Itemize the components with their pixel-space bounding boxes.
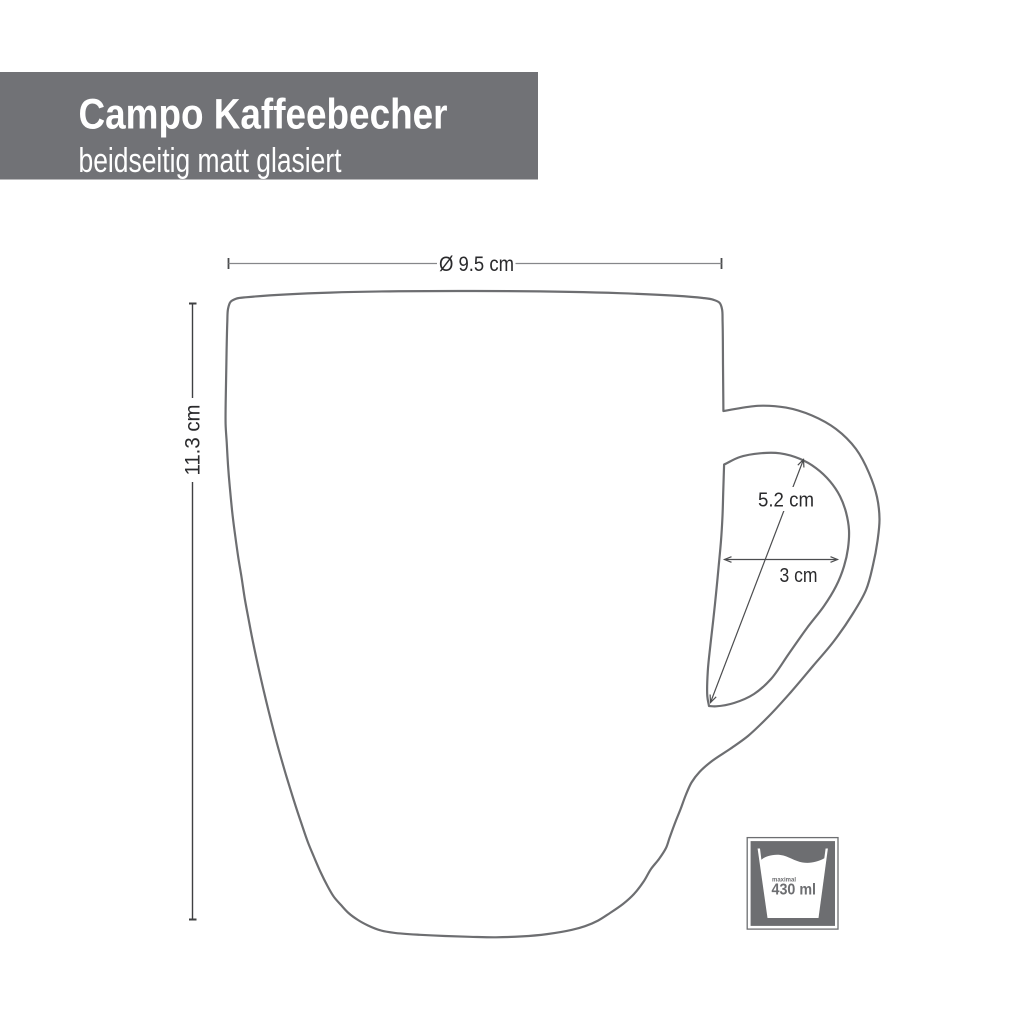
svg-text:Campo Kaffeebecher: Campo Kaffeebecher bbox=[79, 91, 448, 139]
svg-text:430 ml: 430 ml bbox=[772, 882, 817, 899]
svg-text:11.3 cm: 11.3 cm bbox=[182, 405, 205, 476]
svg-text:beidseitig matt glasiert: beidseitig matt glasiert bbox=[79, 142, 342, 180]
svg-text:Ø 9.5 cm: Ø 9.5 cm bbox=[439, 253, 514, 276]
svg-text:3 cm: 3 cm bbox=[780, 565, 818, 587]
svg-text:5.2 cm: 5.2 cm bbox=[758, 490, 814, 512]
